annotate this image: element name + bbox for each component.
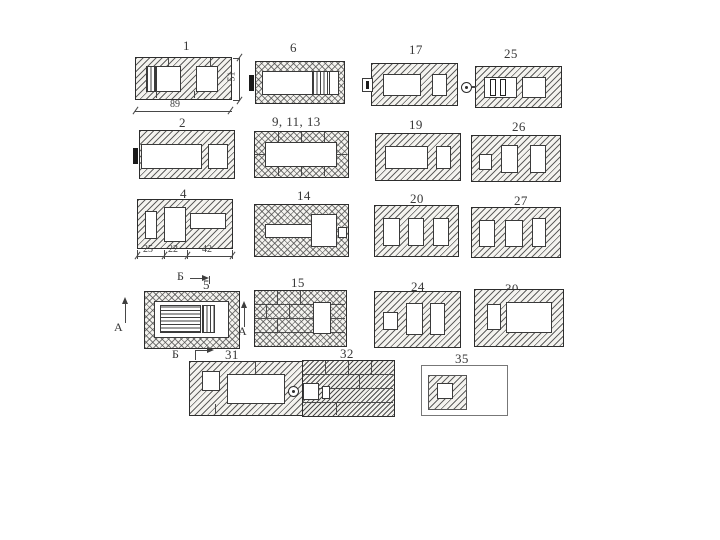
opening <box>208 144 228 169</box>
opening <box>383 312 398 330</box>
masonry-block <box>254 204 349 257</box>
section-mark-a-right: А <box>238 324 247 339</box>
masonry-block <box>471 207 561 258</box>
knob-stem <box>472 86 476 88</box>
dimension-tick <box>228 107 234 115</box>
figure-label: 2 <box>179 115 186 131</box>
grate-stripes <box>160 305 201 333</box>
figure-label: 15 <box>291 275 305 291</box>
opening <box>322 386 330 399</box>
masonry-block <box>255 61 345 104</box>
opening <box>385 146 428 169</box>
brick-joint <box>255 304 345 305</box>
opening <box>532 218 546 247</box>
masonry-block <box>471 135 561 182</box>
section-arrow-icon <box>207 347 214 353</box>
grate-bar <box>490 79 496 96</box>
figure-label: 14 <box>297 188 311 204</box>
brick-joint <box>210 58 211 66</box>
section-mark-b-top: Б <box>177 269 184 284</box>
dimension-line <box>239 58 240 101</box>
opening <box>436 146 451 169</box>
brick-course-diagram-sheet: 1 89 51 6 17 <box>0 0 720 540</box>
opening <box>479 154 492 170</box>
door-frame <box>303 383 319 400</box>
masonry-block <box>371 63 458 106</box>
figure-label: 6 <box>290 40 297 56</box>
damper-knob-icon <box>461 82 472 93</box>
brick-joint <box>324 167 325 176</box>
masonry-partial <box>428 375 467 410</box>
brick-joint <box>168 58 169 66</box>
dimension-line <box>135 111 232 112</box>
flue-stripes <box>146 66 156 92</box>
opening <box>383 74 421 96</box>
opening <box>487 304 501 330</box>
brick-joint <box>301 132 302 142</box>
door-latch-icon <box>249 75 254 91</box>
figure-label: 17 <box>409 42 423 58</box>
masonry-block <box>189 361 303 416</box>
masonry-block <box>302 360 395 417</box>
opening <box>530 145 546 173</box>
brick-joint <box>359 374 360 388</box>
opening <box>479 220 495 247</box>
opening <box>432 74 447 96</box>
brick-joint <box>371 361 372 374</box>
opening <box>190 213 226 229</box>
brick-joint <box>255 318 345 319</box>
opening <box>338 227 347 238</box>
opening <box>437 383 453 399</box>
section-arrow-tick <box>195 350 196 360</box>
opening <box>406 303 423 335</box>
segment-dimension: 22 <box>168 244 178 255</box>
section-arrow-line <box>125 303 126 323</box>
brick-joint <box>266 304 267 318</box>
dimension-tick <box>237 97 243 105</box>
masonry-block <box>144 291 240 349</box>
masonry-block <box>254 290 347 347</box>
width-dimension: 89 <box>170 99 180 110</box>
brick-joint <box>324 132 325 142</box>
figure-label: 26 <box>512 119 526 135</box>
brick-joint <box>300 291 301 304</box>
brick-joint <box>278 167 279 176</box>
brick-joint <box>215 404 216 414</box>
opening <box>227 374 285 404</box>
masonry-block <box>474 289 564 347</box>
opening <box>196 66 218 92</box>
opening <box>145 211 157 239</box>
masonry-block <box>375 133 461 181</box>
opening <box>313 302 331 334</box>
brick-joint <box>194 91 195 98</box>
flue-stripes <box>312 71 330 95</box>
brick-joint <box>337 154 347 155</box>
section-arrow-line <box>190 278 202 279</box>
brick-joint <box>325 361 326 374</box>
door-latch-icon <box>366 81 369 89</box>
brick-joint <box>289 304 290 318</box>
masonry-block <box>135 57 232 100</box>
grate-bar <box>500 79 506 96</box>
opening <box>408 218 424 246</box>
figure-label: 19 <box>409 117 423 133</box>
masonry-block <box>421 365 508 416</box>
masonry-block <box>374 291 461 348</box>
brick-joint <box>277 318 278 332</box>
opening <box>164 207 186 242</box>
brick-joint <box>277 291 278 304</box>
brick-joint <box>255 332 345 333</box>
opening <box>202 371 220 391</box>
opening <box>430 303 445 335</box>
opening <box>141 144 202 169</box>
opening <box>522 77 546 98</box>
segment-dimension: 25 <box>143 244 153 255</box>
door-latch-icon <box>133 148 138 164</box>
opening <box>265 142 337 167</box>
section-mark-a-left: А <box>114 320 123 335</box>
opening <box>506 302 552 333</box>
opening <box>433 218 449 246</box>
brick-joint <box>348 361 349 374</box>
opening <box>505 220 523 247</box>
figure-label: 25 <box>504 46 518 62</box>
brick-joint <box>255 362 256 374</box>
opening <box>156 66 181 92</box>
brick-joint <box>255 154 265 155</box>
brick-joint <box>278 132 279 142</box>
masonry-block <box>374 205 459 257</box>
segment-dimension: 42 <box>202 244 212 255</box>
opening <box>383 218 400 246</box>
masonry-block <box>475 66 562 108</box>
opening <box>311 214 337 247</box>
masonry-block <box>139 130 235 179</box>
opening <box>501 145 518 173</box>
section-mark-b-bottom: Б <box>172 347 179 362</box>
masonry-block <box>137 199 233 249</box>
brick-joint <box>303 402 393 403</box>
figure-label: 9, 11, 13 <box>272 114 321 130</box>
brick-joint <box>336 402 337 415</box>
brick-joint <box>301 167 302 176</box>
section-arrow-line <box>195 350 207 351</box>
brick-joint <box>303 374 393 375</box>
damper-knob-icon <box>288 386 299 397</box>
masonry-block <box>254 131 349 178</box>
figure-label: 1 <box>183 38 190 54</box>
flue-stripes <box>202 305 215 333</box>
brick-joint <box>156 91 157 98</box>
height-dimension: 51 <box>227 72 238 82</box>
